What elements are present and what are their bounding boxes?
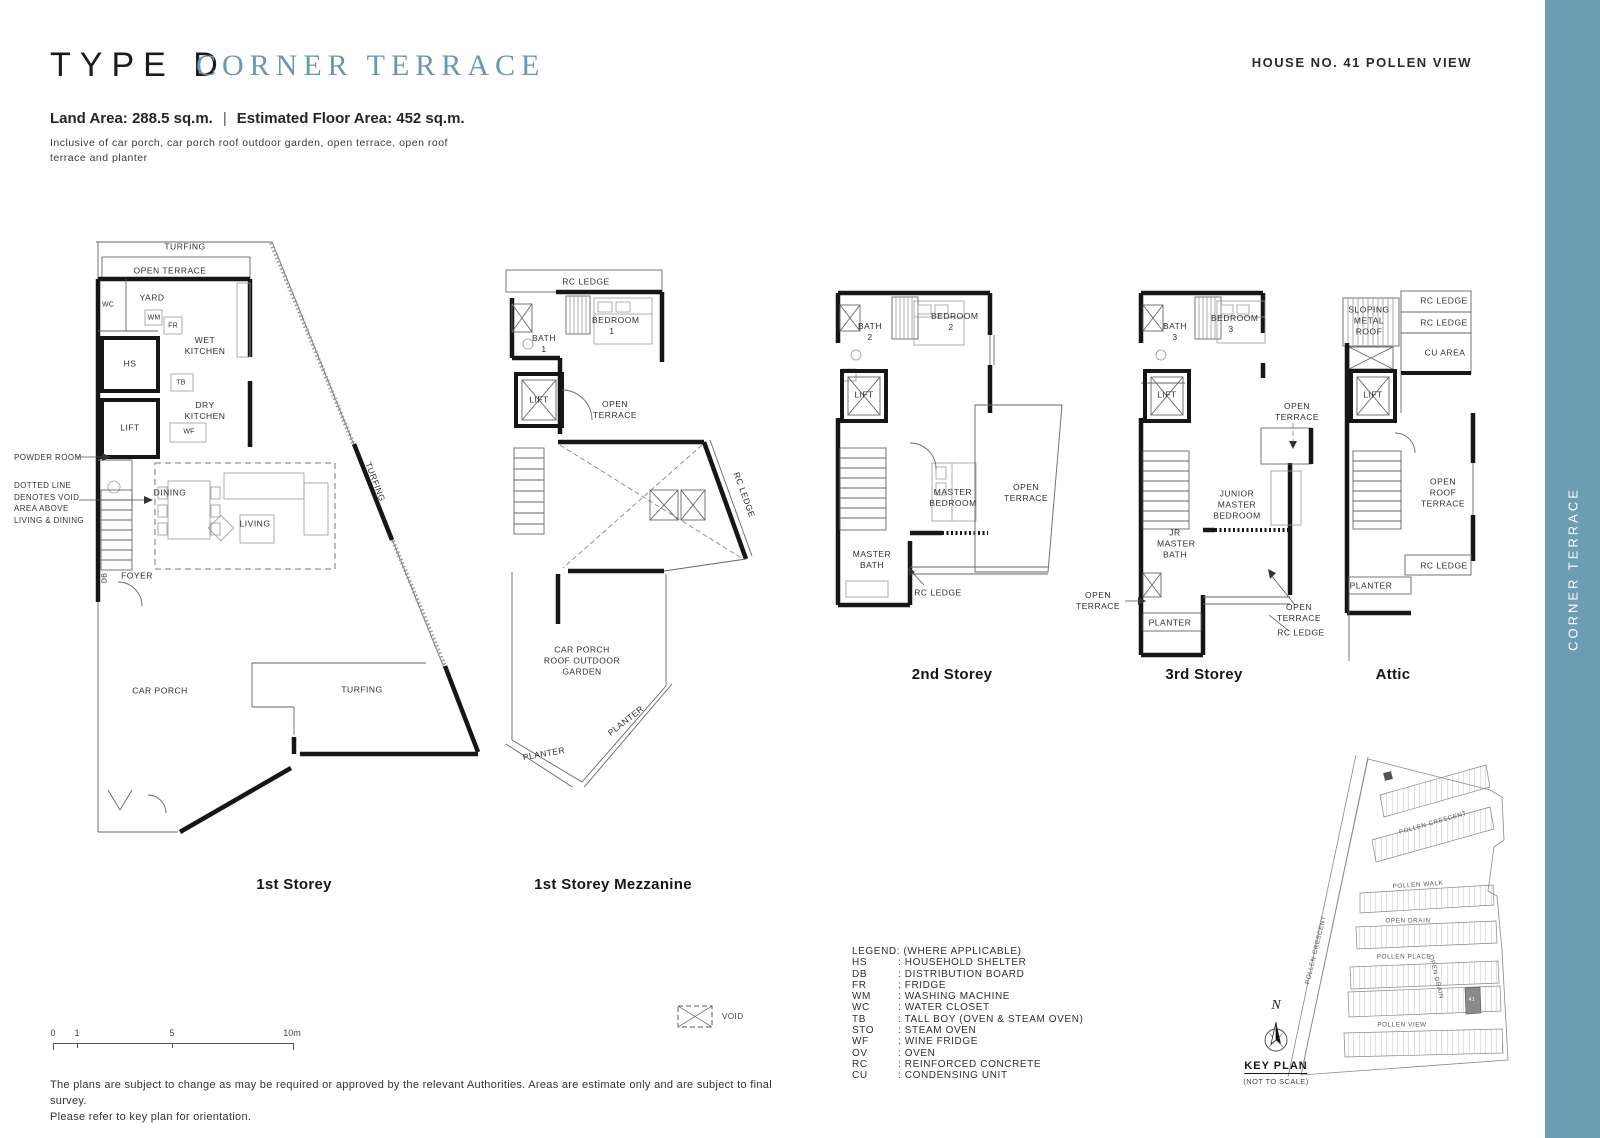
legend: LEGEND: (WHERE APPLICABLE) HS: HOUSEHOLD…	[852, 946, 1083, 1082]
caption-1st-storey: 1st Storey	[256, 876, 332, 893]
room-label-dining: DINING	[154, 487, 187, 498]
floorplan-mezzanine: RC LEDGE BATH 1 BEDROOM 1 LIFT OPEN TERR…	[498, 262, 776, 787]
room-label-junior-master-bedroom: JUNIOR MASTER BEDROOM	[1209, 488, 1265, 521]
room-label-turfing-top: TURFING	[164, 241, 205, 252]
street-pollen-place: POLLEN PLACE	[1377, 954, 1431, 961]
room-label-rc-ledge: RC LEDGE	[914, 587, 961, 598]
room-label-planter: PLANTER	[1149, 617, 1192, 628]
legend-abbr: WF	[852, 1036, 898, 1047]
powder-room-note: POWDER ROOM	[14, 452, 82, 464]
room-label-rc-ledge-3: RC LEDGE	[1420, 560, 1467, 571]
room-label-cu-area: CU AREA	[1425, 347, 1466, 358]
legend-desc: : OVEN	[898, 1048, 936, 1059]
room-label-db: DB	[100, 573, 109, 583]
room-label-yard: YARD	[140, 292, 165, 303]
room-label-foyer: FOYER	[121, 570, 153, 581]
disclaimer-line2: Please refer to key plan for orientation…	[50, 1109, 790, 1125]
room-label-bath3: BATH 3	[1161, 321, 1189, 343]
key-plan-lot-number: 41	[1468, 997, 1475, 1003]
floorplan-attic: SLOPING METAL ROOF RC LEDGE RC LEDGE CU …	[1305, 283, 1485, 678]
scale-bar-line	[53, 1043, 294, 1050]
legend-desc: : FRIDGE	[898, 980, 946, 991]
room-label-turfing-bottom: TURFING	[341, 684, 382, 695]
room-label-wc: WC	[102, 300, 114, 309]
room-label-open-terrace: OPEN TERRACE	[134, 265, 207, 276]
powder-room-leader-arrow	[77, 451, 113, 463]
scale-tick-0: 0	[50, 1028, 55, 1038]
legend-desc: : WINE FRIDGE	[898, 1036, 978, 1047]
room-label-lift: LIFT	[1363, 389, 1382, 400]
room-label-bath1: BATH 1	[530, 333, 558, 355]
room-label-planter: PLANTER	[1350, 580, 1393, 591]
legend-abbr: RC	[852, 1059, 898, 1070]
caption-2nd-storey: 2nd Storey	[912, 666, 993, 683]
void-symbol: VOID	[676, 1004, 716, 1035]
legend-item: CU: CONDENSING UNIT	[852, 1070, 1083, 1081]
legend-desc: : CONDENSING UNIT	[898, 1070, 1008, 1081]
room-label-bath2: BATH 2	[856, 321, 884, 343]
legend-item: RC: REINFORCED CONCRETE	[852, 1059, 1083, 1070]
key-plan-legend-block: N KEY PLAN (NOT TO SCALE)	[1246, 998, 1310, 1090]
room-label-open-terrace: OPEN TERRACE	[1001, 482, 1051, 504]
legend-abbr: DB	[852, 969, 898, 980]
room-label-bedroom2: BEDROOM 2	[931, 311, 971, 333]
floorplan-1st-storey-drawing	[88, 235, 488, 845]
legend-item: TB: TALL BOY (OVEN & STEAM OVEN)	[852, 1014, 1083, 1025]
room-label-jr-master-bath: JR MASTER BATH	[1157, 527, 1193, 560]
void-note-leader-arrow	[79, 494, 157, 506]
legend-item: WM: WASHING MACHINE	[852, 991, 1083, 1002]
legend-desc: : DISTRIBUTION BOARD	[898, 969, 1024, 980]
legend-desc: : HOUSEHOLD SHELTER	[898, 957, 1026, 968]
page-title-subtype: CORNER TERRACE	[196, 49, 545, 83]
room-label-master-bedroom: MASTER BEDROOM	[925, 487, 981, 509]
area-separator: |	[223, 110, 227, 127]
legend-abbr: HS	[852, 957, 898, 968]
room-label-bedroom3: BEDROOM 3	[1211, 313, 1251, 335]
room-label-garden: CAR PORCH ROOF OUTDOOR GARDEN	[540, 644, 624, 677]
legend-abbr: WC	[852, 1002, 898, 1013]
void-symbol-icon	[676, 1004, 716, 1030]
room-label-tb: TB	[176, 378, 185, 387]
room-label-rc-ledge-top: RC LEDGE	[562, 276, 609, 287]
street-open-drain: OPEN DRAIN	[1385, 918, 1430, 925]
disclaimer: The plans are subject to change as may b…	[50, 1077, 790, 1125]
scale-tick-5: 5	[169, 1028, 174, 1038]
room-label-wet-kitchen: WET KITCHEN	[182, 335, 228, 357]
north-label: N	[1271, 998, 1280, 1014]
floorplan-3rd-storey: BATH 3 BEDROOM 3 LIFT OPEN TERRACE JUNIO…	[1085, 283, 1333, 678]
legend-item: OV: OVEN	[852, 1048, 1083, 1059]
room-label-wm: WM	[148, 313, 161, 322]
room-label-bedroom1: BEDROOM 1	[592, 315, 632, 337]
room-label-lift: LIFT	[120, 422, 139, 433]
scale-tick-10: 10m	[283, 1028, 301, 1038]
floorplan-2nd-storey-drawing	[812, 283, 1067, 633]
caption-attic: Attic	[1376, 666, 1411, 683]
legend-desc: : STEAM OVEN	[898, 1025, 976, 1036]
north-arrow-icon	[1256, 1014, 1296, 1058]
room-label-lift: LIFT	[529, 394, 548, 405]
floorplan-1st-storey: TURFING OPEN TERRACE WC YARD WM FR HS WE…	[88, 235, 488, 845]
room-label-open-roof-terrace: OPEN ROOF TERRACE	[1417, 476, 1469, 509]
scale-bar-tick-mark	[172, 1043, 173, 1048]
land-area: Land Area: 288.5 sq.m.	[50, 110, 213, 127]
inclusive-note: Inclusive of car porch, car porch roof o…	[50, 136, 448, 165]
scale-bar: 0 1 5 10m	[48, 1028, 308, 1058]
floor-area: Estimated Floor Area: 452 sq.m.	[237, 110, 465, 127]
void-symbol-label: VOID	[722, 1012, 744, 1021]
legend-abbr: FR	[852, 980, 898, 991]
scale-bar-tick-mark	[77, 1043, 78, 1048]
room-label-dry-kitchen: DRY KITCHEN	[182, 400, 228, 422]
disclaimer-line1: The plans are subject to change as may b…	[50, 1077, 790, 1109]
legend-desc: : WATER CLOSET	[898, 1002, 990, 1013]
room-label-master-bath: MASTER BATH	[850, 549, 894, 571]
room-label-car-porch: CAR PORCH	[132, 685, 188, 696]
floorplan-2nd-storey: BATH 2 BEDROOM 2 LIFT MASTER BEDROOM OPE…	[812, 283, 1067, 633]
caption-3rd-storey: 3rd Storey	[1165, 666, 1242, 683]
legend-abbr: TB	[852, 1014, 898, 1025]
legend-desc: : REINFORCED CONCRETE	[898, 1059, 1041, 1070]
legend-abbr: OV	[852, 1048, 898, 1059]
edge-band: CORNER TERRACE	[1545, 0, 1600, 1138]
room-label-sloping-roof: SLOPING METAL ROOF	[1345, 304, 1393, 337]
room-label-lift: LIFT	[854, 389, 873, 400]
legend-item: WF: WINE FRIDGE	[852, 1036, 1083, 1047]
room-label-open-terrace-left: OPEN TERRACE	[1073, 590, 1123, 612]
caption-mezzanine: 1st Storey Mezzanine	[534, 876, 692, 893]
legend-abbr: WM	[852, 991, 898, 1002]
room-label-rc-ledge-2: RC LEDGE	[1420, 317, 1467, 328]
legend-item: FR: FRIDGE	[852, 980, 1083, 991]
legend-title: LEGEND: (WHERE APPLICABLE)	[852, 946, 1083, 957]
legend-desc: : WASHING MACHINE	[898, 991, 1010, 1002]
room-label-living: LIVING	[240, 518, 271, 529]
legend-abbr: CU	[852, 1070, 898, 1081]
key-plan-title: KEY PLAN	[1244, 1060, 1307, 1074]
legend-item: HS: HOUSEHOLD SHELTER	[852, 957, 1083, 968]
house-number: HOUSE NO. 41 POLLEN VIEW	[1252, 55, 1472, 70]
legend-abbr: STO	[852, 1025, 898, 1036]
room-label-lift: LIFT	[1157, 389, 1176, 400]
room-label-fr: FR	[168, 321, 178, 330]
room-label-rc-ledge-1: RC LEDGE	[1420, 295, 1467, 306]
room-label-wf: WF	[183, 427, 194, 436]
legend-item: DB: DISTRIBUTION BOARD	[852, 969, 1083, 980]
legend-item: STO: STEAM OVEN	[852, 1025, 1083, 1036]
street-pollen-view: POLLEN VIEW	[1377, 1022, 1426, 1029]
legend-desc: : TALL BOY (OVEN & STEAM OVEN)	[898, 1014, 1083, 1025]
room-label-open-terrace: OPEN TERRACE	[590, 399, 640, 421]
scale-tick-1: 1	[74, 1028, 79, 1038]
key-plan-subtitle: (NOT TO SCALE)	[1243, 1077, 1308, 1086]
legend-item: WC: WATER CLOSET	[852, 1002, 1083, 1013]
area-summary: Land Area: 288.5 sq.m.|Estimated Floor A…	[50, 110, 465, 127]
room-label-hs: HS	[124, 358, 137, 369]
edge-band-label: CORNER TERRACE	[1565, 487, 1580, 651]
